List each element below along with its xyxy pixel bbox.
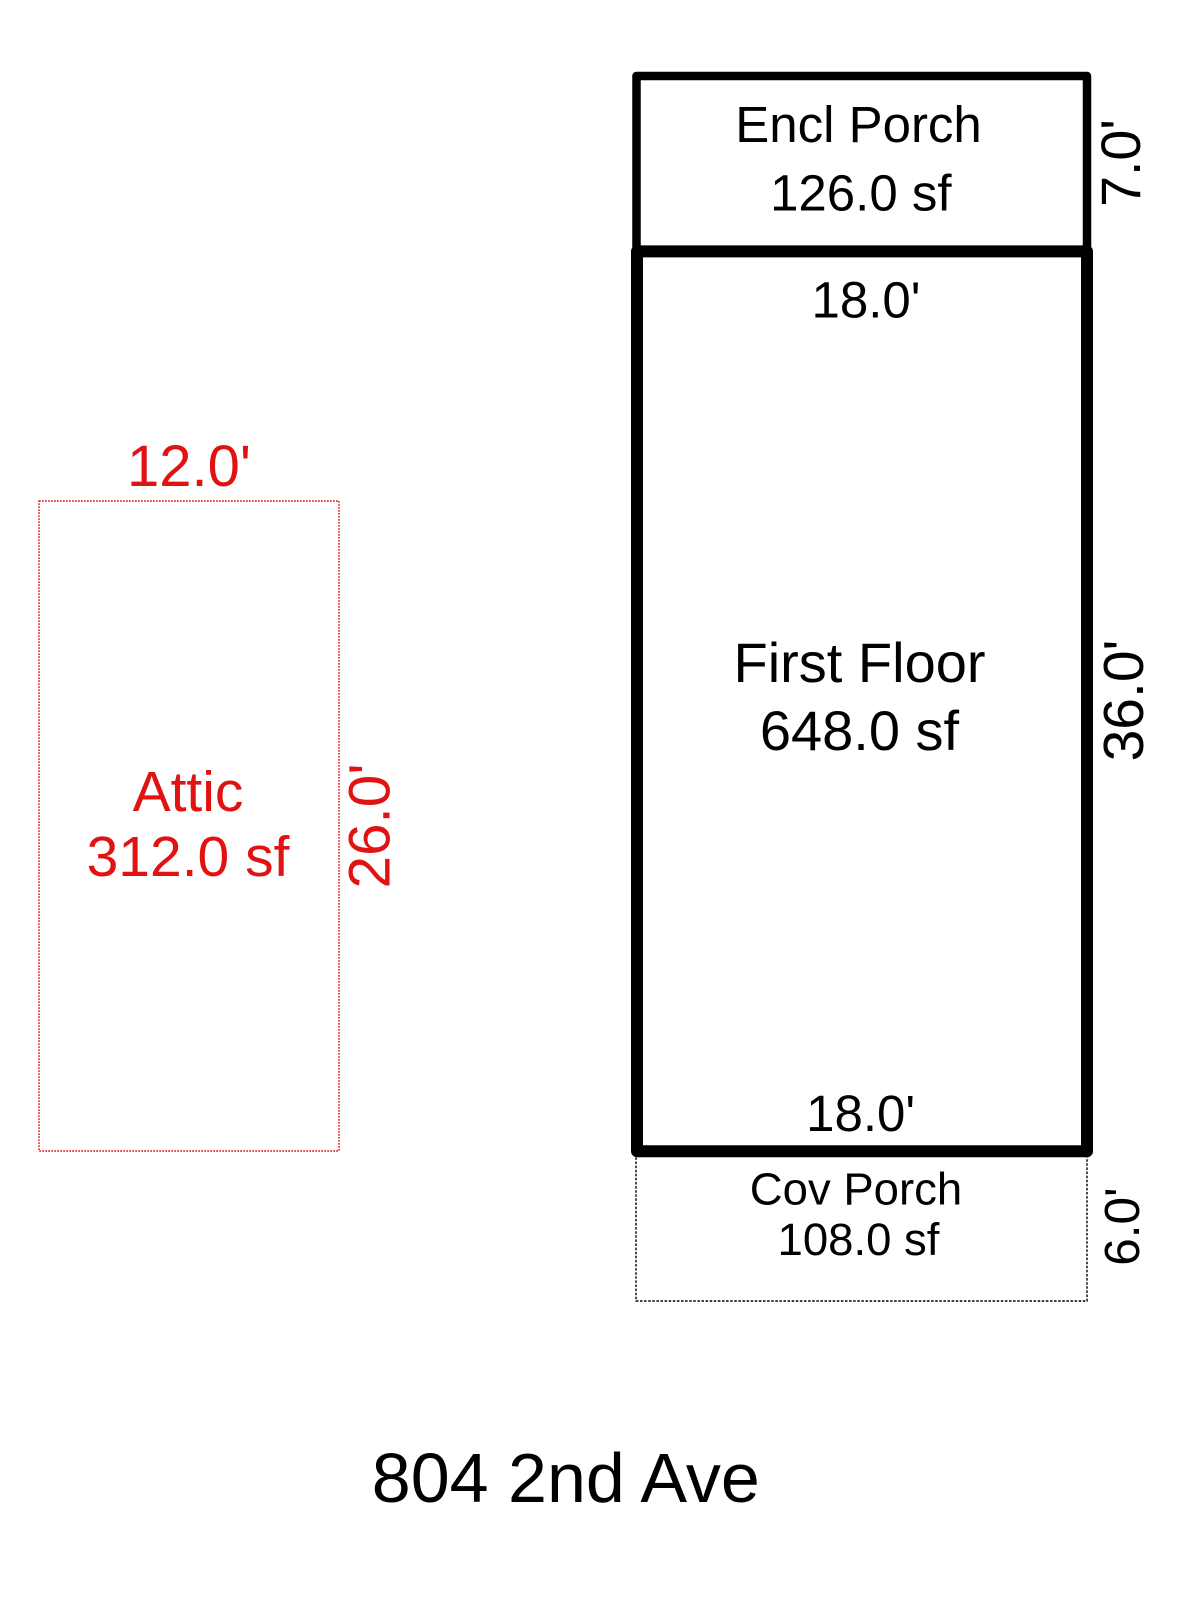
svg-text:7.0': 7.0' bbox=[1090, 119, 1152, 207]
svg-text:18.0': 18.0' bbox=[812, 272, 921, 329]
svg-text:108.0 sf: 108.0 sf bbox=[778, 1214, 940, 1265]
svg-text:126.0 sf: 126.0 sf bbox=[770, 165, 952, 222]
svg-text:36.0': 36.0' bbox=[1092, 640, 1156, 762]
svg-text:26.0': 26.0' bbox=[337, 763, 402, 888]
svg-text:312.0 sf: 312.0 sf bbox=[87, 825, 290, 889]
svg-text:6.0': 6.0' bbox=[1095, 1187, 1150, 1265]
svg-text:Cov Porch: Cov Porch bbox=[750, 1164, 962, 1215]
svg-text:First Floor: First Floor bbox=[734, 631, 986, 694]
svg-text:Encl Porch: Encl Porch bbox=[735, 96, 982, 153]
svg-text:Attic: Attic bbox=[133, 760, 244, 824]
svg-text:12.0': 12.0' bbox=[127, 434, 251, 499]
svg-text:18.0': 18.0' bbox=[806, 1085, 915, 1142]
svg-text:648.0 sf: 648.0 sf bbox=[760, 699, 960, 762]
svg-text:804 2nd Ave: 804 2nd Ave bbox=[372, 1439, 760, 1517]
